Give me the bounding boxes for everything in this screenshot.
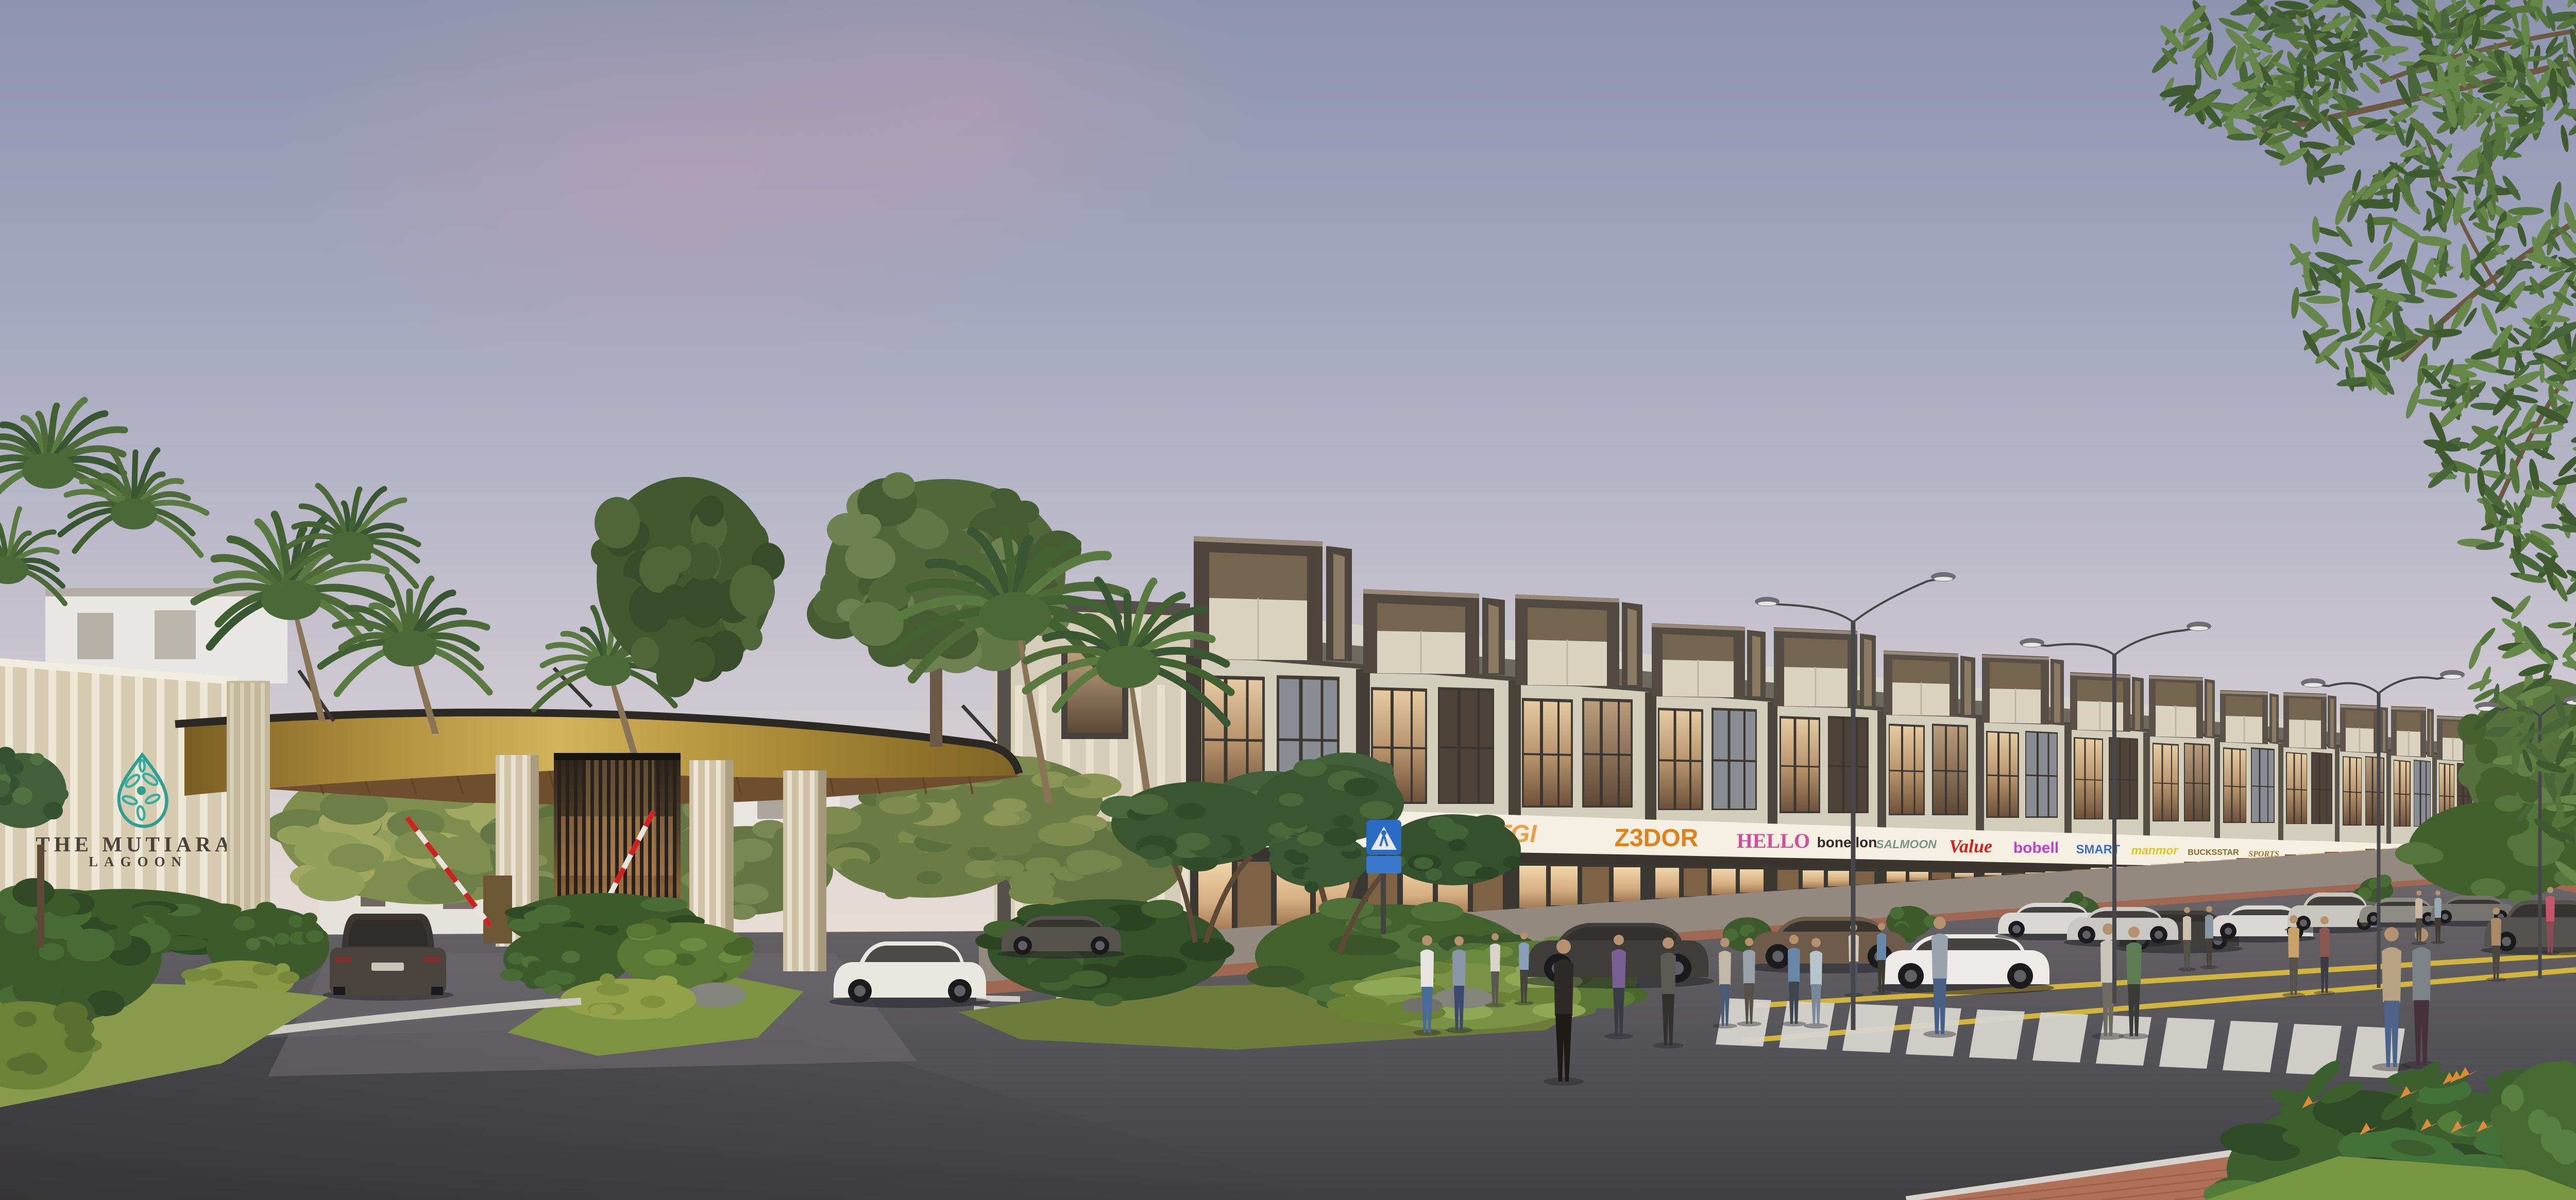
svg-text:bonellon: bonellon bbox=[1817, 834, 1877, 850]
svg-text:SALMOON: SALMOON bbox=[1876, 837, 1937, 851]
svg-text:BUCKSSTAR: BUCKSSTAR bbox=[2188, 848, 2239, 857]
svg-text:HELLO: HELLO bbox=[1737, 829, 1810, 852]
svg-text:Value: Value bbox=[1949, 836, 1992, 856]
svg-text:Z3DOR: Z3DOR bbox=[1615, 825, 1699, 852]
svg-text:THE MUTIARA: THE MUTIARA bbox=[36, 832, 234, 856]
svg-text:bobell: bobell bbox=[2013, 839, 2059, 856]
svg-text:LAGOON: LAGOON bbox=[89, 854, 188, 869]
svg-text:manmor: manmor bbox=[2131, 844, 2179, 857]
